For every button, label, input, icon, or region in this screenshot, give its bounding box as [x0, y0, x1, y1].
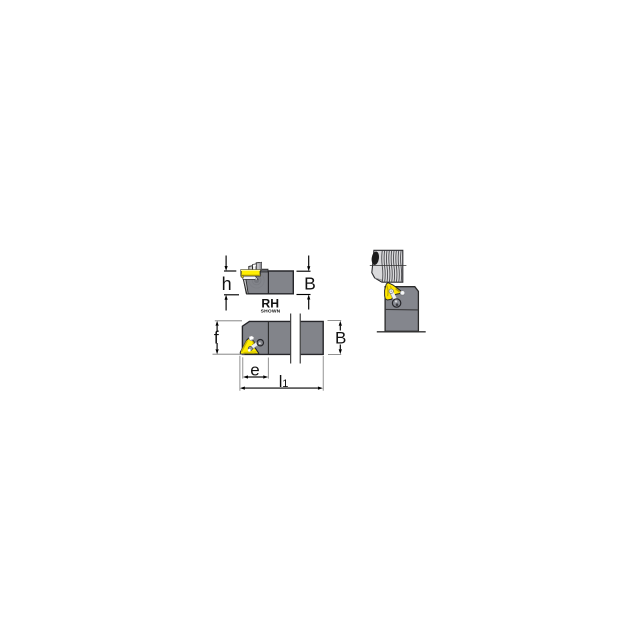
svg-text:1: 1 — [282, 378, 288, 390]
svg-text:B: B — [304, 274, 316, 294]
svg-text:RH: RH — [261, 297, 279, 311]
svg-text:B: B — [335, 328, 346, 347]
svg-text:f: f — [214, 328, 219, 348]
svg-text:e: e — [250, 361, 259, 380]
svg-text:h: h — [222, 274, 232, 294]
svg-text:SHOWN: SHOWN — [261, 309, 281, 315]
